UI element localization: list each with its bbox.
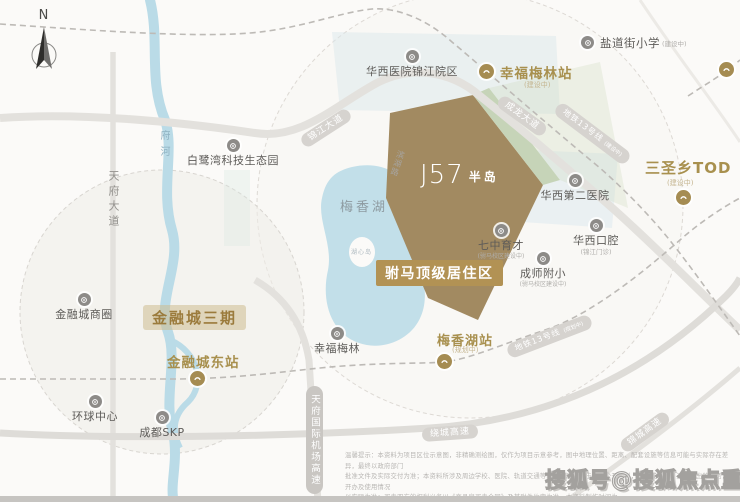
poi-icon-yandaojie (581, 36, 594, 49)
station-icon-xingfumeilin (479, 64, 494, 79)
badge-fuma-residence: 驸马顶级居住区 (376, 260, 503, 286)
station-note-meixianghu: (规划中) (452, 345, 478, 355)
lake-label: 梅香湖 (340, 196, 388, 215)
station-icon-meixianghu (437, 354, 452, 369)
bottom-edge-strip (0, 496, 740, 502)
watermark: 搜狐号@搜狐焦点重庆站 (545, 464, 740, 494)
compass-arrow-icon (26, 23, 62, 75)
poi-xingfumeilin-park: 幸福梅林 (287, 327, 387, 355)
station-label-sanshengxiang-tod: 三圣乡TOD (645, 157, 731, 178)
station-icon-sanshengxiang (676, 190, 691, 205)
station-label-jinrongchengdong: 金融城东站 (167, 351, 240, 371)
poi-icon-huaxi-jinjiang (406, 50, 419, 63)
poi-bailuwan: 白鹭湾科技生态园 (168, 139, 298, 167)
poi-icon-xingfumeilin-park (331, 327, 344, 340)
station-label-xingfumeilin: 幸福梅林站 (500, 62, 573, 82)
poi-chengdu-skp: 成都SKP (112, 411, 212, 439)
project-logo-main: J57 (420, 163, 464, 187)
road-label-tianfu-avenue: 天府大道 (105, 170, 121, 230)
station-note-sanshengxiang-tod: (建设中) (667, 178, 693, 188)
poi-icon-bailuwan (227, 139, 240, 152)
poi-huaxi-dental: 华西口腔 (锦江门诊) (546, 219, 646, 256)
poi-icon-chengdu-skp (156, 411, 169, 424)
poi-icon-chengshi-fuxiao (537, 252, 550, 265)
park-tint (224, 170, 250, 246)
station-icon-jinrongchengdong (190, 371, 205, 386)
poi-huaxi-second: 华西第二医院 (515, 174, 635, 202)
poi-jinrongcheng-shangquan: 金融城商圈 (34, 293, 134, 321)
poi-huaxi-jinjiang: 华西医院锦江院区 (352, 50, 472, 78)
poi-icon-huaxi-dental (590, 219, 603, 232)
poi-icon-huaxi-second (569, 174, 582, 187)
poi-chengshi-fuxiao: 成师附小 (驸马校区建设中) (493, 252, 593, 289)
poi-icon-qizhong-yucai (495, 224, 508, 237)
lake-island-label: 湖心岛 (351, 247, 372, 256)
compass: N (24, 8, 64, 79)
poi-icon-jinrongcheng-shangquan (78, 293, 91, 306)
badge-financial-city-phase3: 金融城三期 (143, 305, 246, 330)
map-canvas: N 锦江大道 成龙大道 地铁13号线 (建设中) 地铁13号线 (规划中) 绕城… (0, 0, 740, 502)
station-note-xingfumeilin: (建设中) (524, 80, 550, 90)
poi-icon-huanqiu-center (89, 395, 102, 408)
project-logo: J57 半岛 (420, 163, 499, 187)
road-label-airport-expressway: 天府国际机场高速 (306, 386, 323, 494)
project-logo-sub: 半岛 (469, 168, 499, 185)
station-icon-edge (719, 62, 734, 77)
compass-north-label: N (24, 8, 64, 23)
poi-yandaojie: 盐道街小学 (建设中) (581, 36, 687, 49)
